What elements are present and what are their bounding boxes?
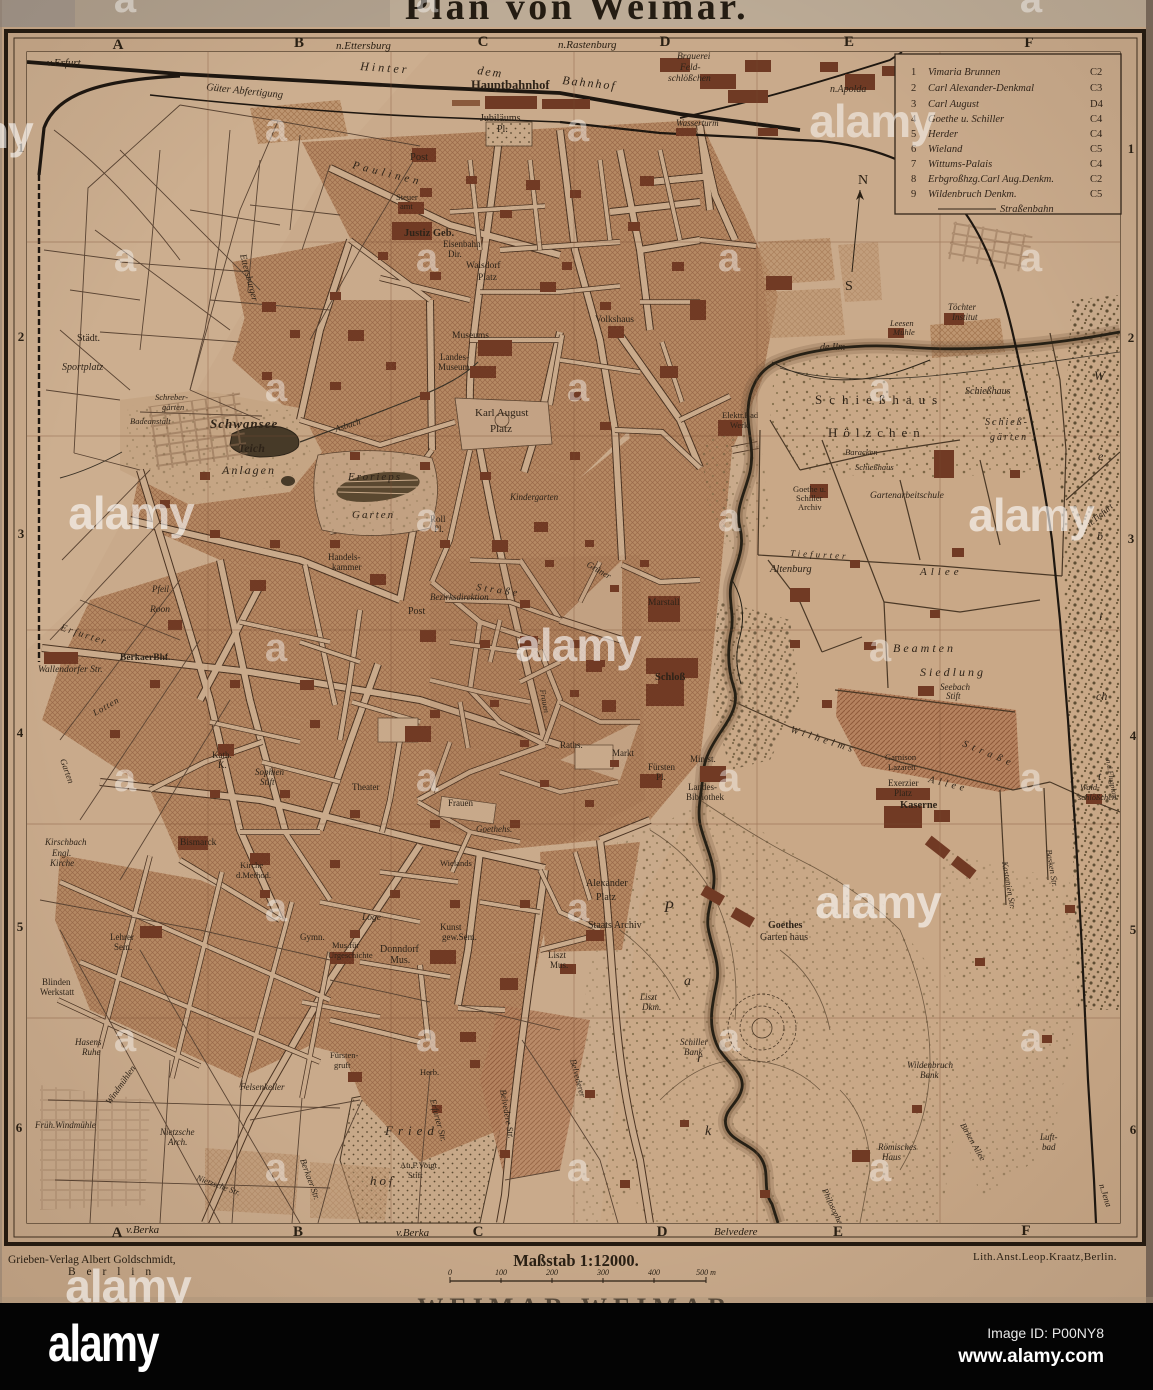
svg-text:a: a xyxy=(567,106,590,150)
svg-text:a: a xyxy=(718,1016,741,1060)
svg-text:a: a xyxy=(114,236,137,280)
svg-text:a: a xyxy=(718,756,741,800)
svg-text:a: a xyxy=(416,496,439,540)
svg-text:a: a xyxy=(416,0,439,21)
svg-text:a: a xyxy=(718,496,741,540)
svg-text:a: a xyxy=(416,1016,439,1060)
svg-text:a: a xyxy=(567,366,590,410)
svg-text:a: a xyxy=(869,626,892,670)
svg-text:a: a xyxy=(1020,1016,1043,1060)
svg-text:alamy: alamy xyxy=(809,95,936,147)
svg-text:a: a xyxy=(869,1146,892,1190)
svg-text:Image ID: P00NY8: Image ID: P00NY8 xyxy=(987,1325,1104,1341)
svg-text:a: a xyxy=(416,756,439,800)
svg-text:www.alamy.com: www.alamy.com xyxy=(957,1346,1104,1367)
svg-text:a: a xyxy=(265,106,288,150)
svg-text:alamy: alamy xyxy=(68,487,195,539)
svg-text:a: a xyxy=(265,366,288,410)
svg-text:a: a xyxy=(265,626,288,670)
svg-text:alamy: alamy xyxy=(815,876,942,928)
svg-text:a: a xyxy=(1020,756,1043,800)
svg-text:alamy: alamy xyxy=(48,1314,159,1373)
svg-text:a: a xyxy=(114,756,137,800)
svg-text:a: a xyxy=(416,236,439,280)
svg-text:a: a xyxy=(718,236,741,280)
svg-text:a: a xyxy=(265,886,288,930)
svg-text:a: a xyxy=(265,1146,288,1190)
svg-text:alamy: alamy xyxy=(515,619,642,671)
svg-text:a: a xyxy=(114,1016,137,1060)
svg-text:a: a xyxy=(1020,0,1043,21)
svg-text:a: a xyxy=(1020,236,1043,280)
svg-text:alamy: alamy xyxy=(968,489,1095,541)
svg-text:a: a xyxy=(869,366,892,410)
svg-text:a: a xyxy=(567,886,590,930)
svg-text:alamy: alamy xyxy=(0,106,34,158)
svg-text:a: a xyxy=(567,1146,590,1190)
svg-text:a: a xyxy=(114,0,137,21)
